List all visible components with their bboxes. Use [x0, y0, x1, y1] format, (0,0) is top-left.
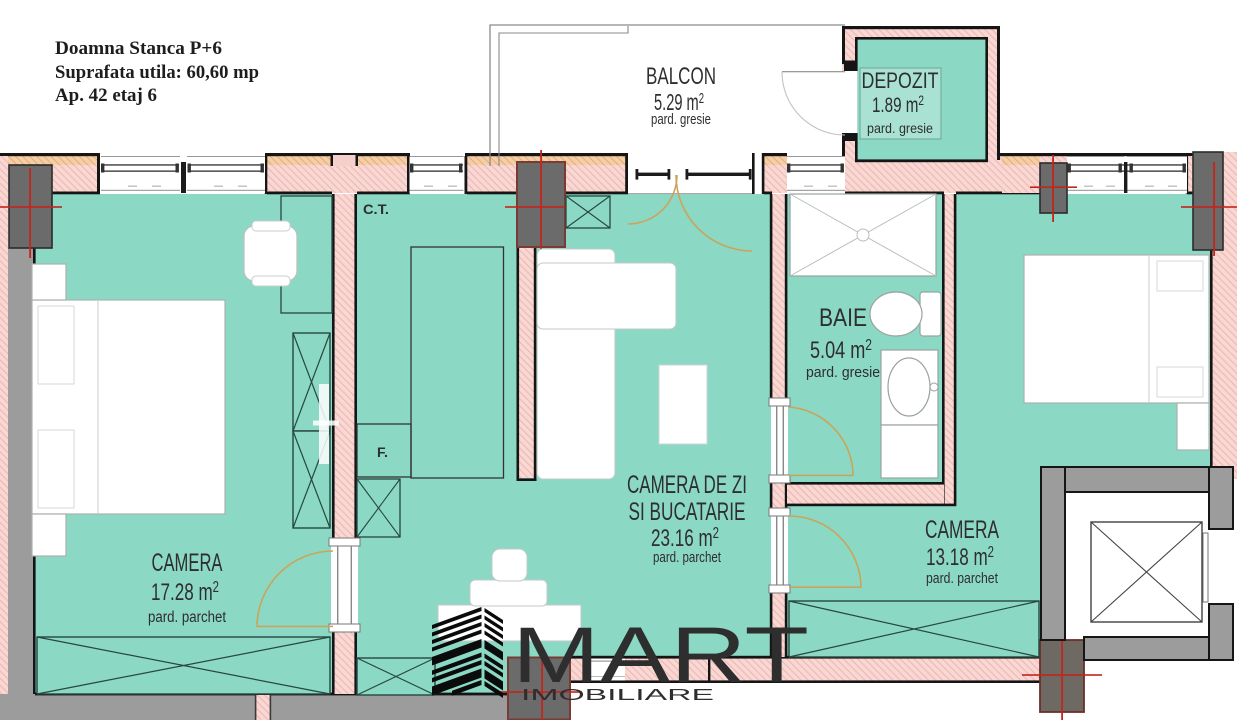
svg-text:Ap. 42 etaj 6: Ap. 42 etaj 6 [55, 85, 157, 106]
svg-text:13.18 m2: 13.18 m2 [926, 544, 994, 571]
svg-text:SI BUCATARIE: SI BUCATARIE [629, 498, 746, 526]
svg-text:17.28 m2: 17.28 m2 [151, 579, 219, 606]
svg-text:1.89 m2: 1.89 m2 [872, 92, 924, 117]
svg-text:23.16 m2: 23.16 m2 [651, 525, 719, 552]
svg-text:pard. gresie: pard. gresie [806, 364, 880, 381]
svg-text:MART: MART [512, 610, 809, 699]
svg-text:pard. parchet: pard. parchet [926, 570, 999, 587]
svg-text:BALCON: BALCON [646, 63, 716, 90]
svg-text:pard. gresie: pard. gresie [651, 111, 711, 128]
svg-text:CAMERA DE ZI: CAMERA DE ZI [627, 471, 747, 499]
svg-text:Doamna Stanca P+6: Doamna Stanca P+6 [55, 38, 222, 59]
svg-text:CAMERA: CAMERA [925, 516, 999, 544]
svg-text:DEPOZIT: DEPOZIT [862, 68, 939, 93]
svg-text:pard. parchet: pard. parchet [653, 549, 722, 566]
svg-text:BAIE: BAIE [819, 304, 867, 332]
svg-text:C.T.: C.T. [363, 201, 389, 217]
svg-text:pard. parchet: pard. parchet [148, 609, 227, 626]
svg-text:F.: F. [377, 444, 388, 460]
svg-text:Suprafata utila: 60,60 mp: Suprafata utila: 60,60 mp [55, 62, 259, 83]
svg-text:5.04 m2: 5.04 m2 [810, 337, 872, 364]
svg-text:pard. gresie: pard. gresie [867, 120, 933, 136]
svg-text:CAMERA: CAMERA [152, 549, 223, 577]
svg-text:IMOBILIARE: IMOBILIARE [521, 687, 714, 704]
